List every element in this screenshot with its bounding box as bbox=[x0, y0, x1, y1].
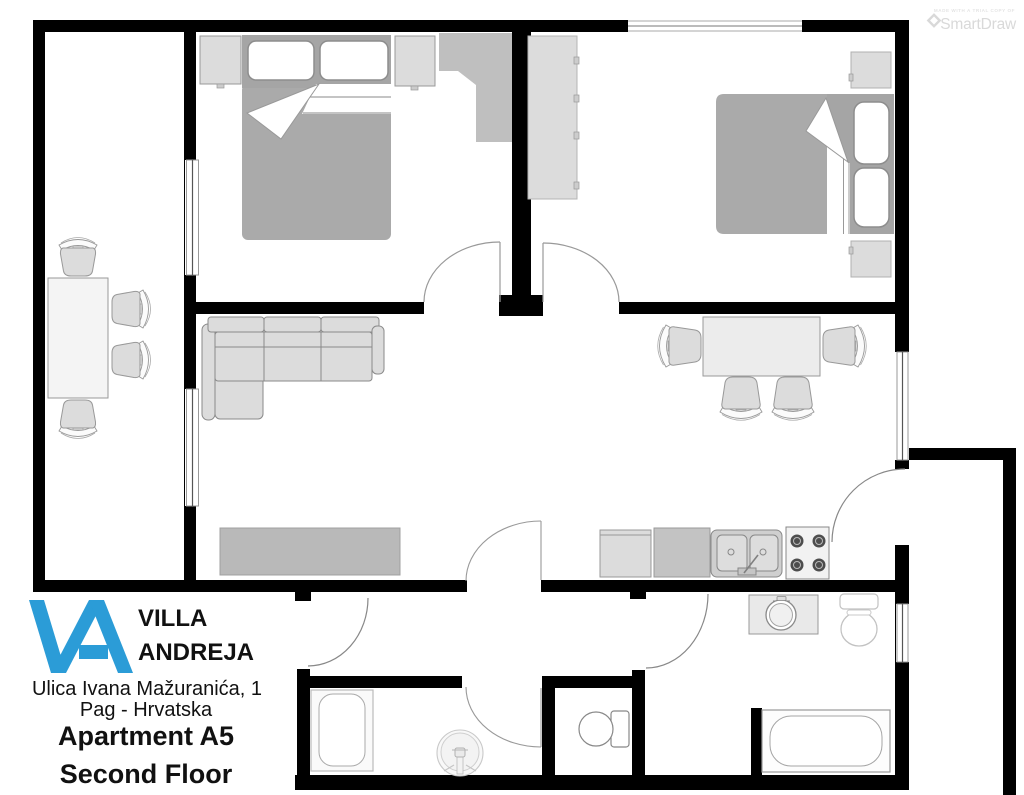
svg-text:VILLA: VILLA bbox=[138, 605, 207, 632]
svg-text:Pag - Hrvatska: Pag - Hrvatska bbox=[80, 699, 213, 721]
svg-text:Apartment A5: Apartment A5 bbox=[58, 721, 234, 751]
svg-text:Ulica Ivana Mažuranića, 1: Ulica Ivana Mažuranića, 1 bbox=[32, 678, 262, 700]
svg-text:ANDREJA: ANDREJA bbox=[138, 639, 254, 666]
svg-text:SmartDraw: SmartDraw bbox=[940, 16, 1017, 33]
svg-text:Second Floor: Second Floor bbox=[60, 759, 233, 789]
svg-text:MADE WITH A TRIAL COPY OF: MADE WITH A TRIAL COPY OF bbox=[934, 8, 1015, 13]
